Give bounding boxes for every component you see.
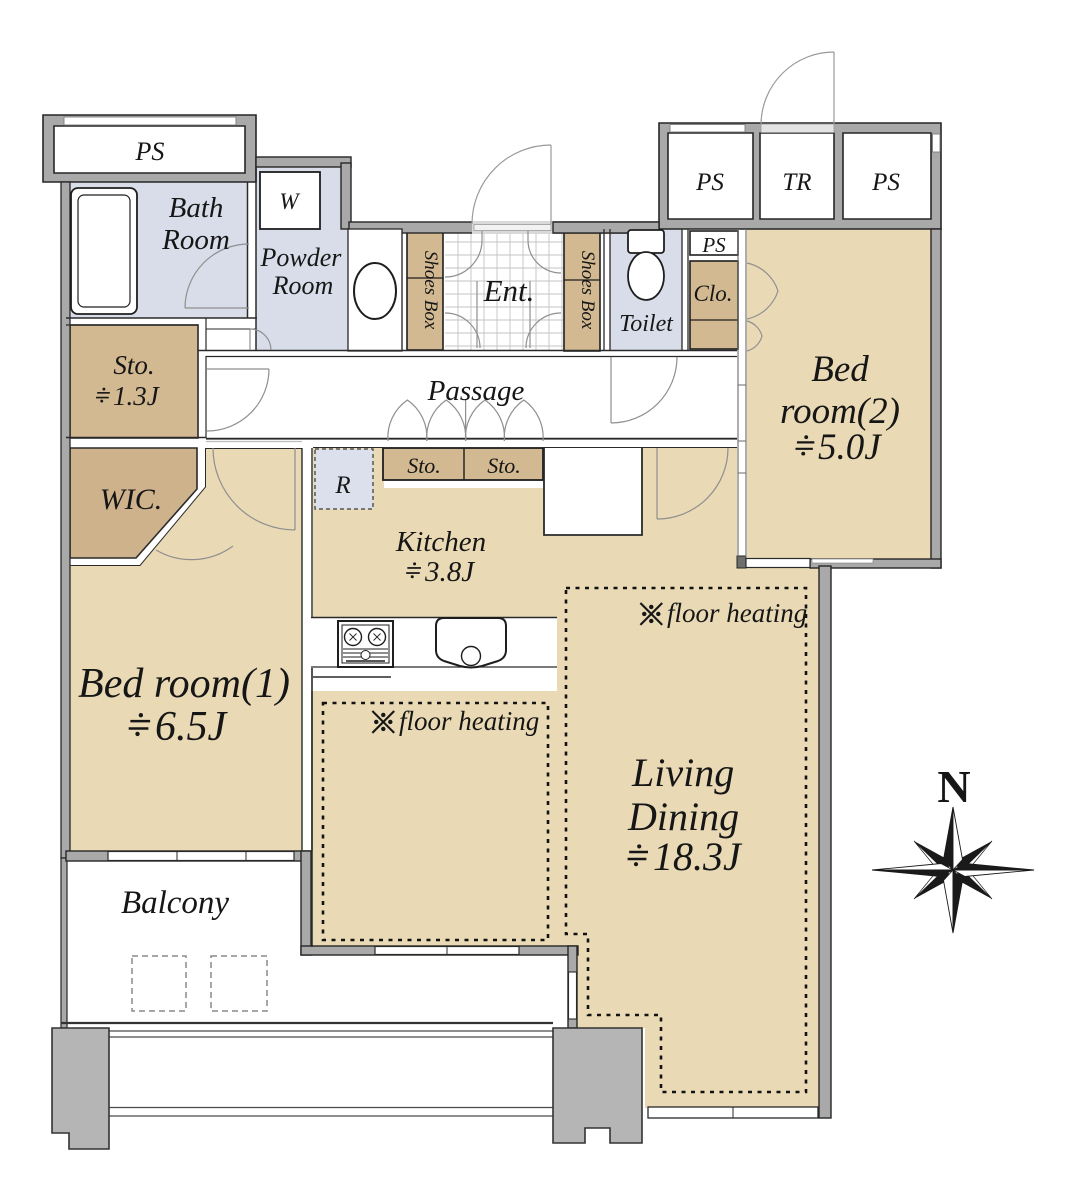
svg-text:PS: PS <box>135 137 165 166</box>
svg-text:6.5J: 6.5J <box>155 704 229 750</box>
svg-text:Dining: Dining <box>627 794 739 839</box>
svg-text:PS: PS <box>695 169 724 196</box>
svg-text:room(2): room(2) <box>780 391 900 432</box>
svg-text:N: N <box>937 761 970 812</box>
svg-text:Kitchen: Kitchen <box>395 526 486 558</box>
svg-text:Toilet: Toilet <box>619 311 674 337</box>
svg-text:Ent.: Ent. <box>483 273 535 308</box>
svg-text:Sto.: Sto. <box>487 453 521 478</box>
svg-text:R: R <box>334 472 350 499</box>
svg-text:PS: PS <box>701 233 726 257</box>
svg-text:Living: Living <box>631 750 734 795</box>
svg-text:5.0J: 5.0J <box>818 427 882 468</box>
svg-text:W: W <box>279 189 300 214</box>
svg-text:Balcony: Balcony <box>121 885 229 921</box>
svg-text:WIC.: WIC. <box>100 483 163 516</box>
svg-text:floor heating: floor heating <box>667 598 807 628</box>
svg-text:Room: Room <box>272 271 334 300</box>
svg-text:3.8J: 3.8J <box>424 556 475 588</box>
svg-text:Room: Room <box>161 224 230 256</box>
svg-text:floor heating: floor heating <box>399 706 539 736</box>
svg-text:Passage: Passage <box>427 375 525 407</box>
svg-text:Clo.: Clo. <box>694 281 733 306</box>
svg-text:Bed room(1): Bed room(1) <box>78 661 290 707</box>
svg-text:1.3J: 1.3J <box>113 381 161 411</box>
svg-text:Powder: Powder <box>260 243 343 272</box>
svg-text:Sto.: Sto. <box>407 453 441 478</box>
svg-text:18.3J: 18.3J <box>653 834 743 879</box>
svg-text:PS: PS <box>871 169 900 196</box>
svg-text:Bath: Bath <box>169 192 224 224</box>
svg-text:Shoes Box: Shoes Box <box>420 251 441 330</box>
svg-text:Shoes Box: Shoes Box <box>577 251 598 330</box>
svg-text:Bed: Bed <box>811 349 869 390</box>
svg-text:Sto.: Sto. <box>113 350 154 380</box>
svg-text:TR: TR <box>782 169 811 196</box>
